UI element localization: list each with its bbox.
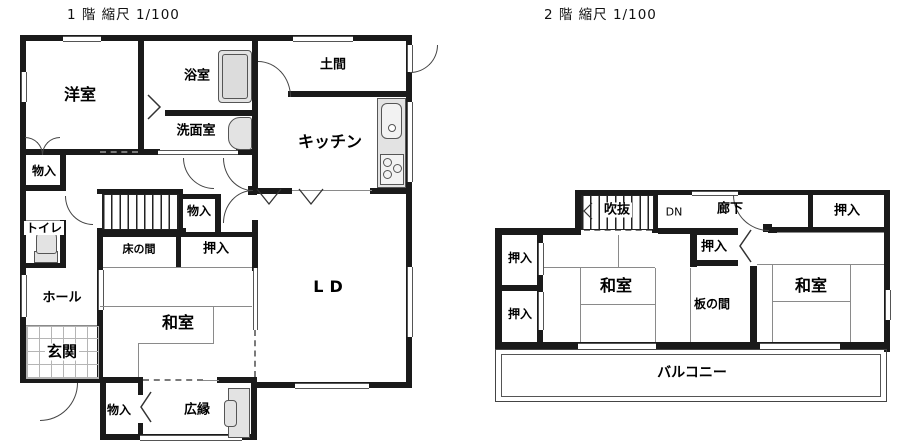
folding-door-icon — [146, 95, 162, 119]
staircase — [102, 194, 179, 230]
partition-line — [777, 232, 884, 233]
dashed-opening — [143, 379, 203, 381]
wall — [658, 228, 694, 234]
burner-icon — [393, 164, 402, 173]
kitchen-sink-icon — [381, 103, 402, 139]
wall — [165, 110, 252, 116]
sliding-door — [538, 292, 544, 330]
dashed-opening — [254, 330, 256, 377]
wall — [97, 377, 143, 383]
sliding-door — [253, 268, 258, 330]
tatami-line — [580, 304, 655, 305]
tatami-line — [772, 265, 773, 342]
washbasin-icon — [228, 117, 252, 150]
floor-plan-canvas: 1 階 縮尺 1/100 2 階 縮尺 1/100 — [0, 0, 903, 448]
door-arc — [183, 158, 214, 189]
window — [140, 435, 242, 441]
wall — [20, 263, 66, 268]
room-label-yoshitsu: 洋室 — [64, 87, 96, 103]
wall — [690, 228, 738, 235]
tatami-line — [655, 268, 656, 342]
room-label-doma: 土間 — [320, 59, 346, 72]
room-label-senmen: 洗面室 — [176, 125, 215, 138]
wall — [251, 383, 257, 440]
folding-door-icon — [139, 392, 152, 422]
room-label-hiroen: 広縁 — [184, 404, 210, 417]
tatami-line — [213, 307, 214, 344]
room-label-itanoma: 板の間 — [694, 298, 730, 310]
room-label-mononyu: 物入 — [32, 165, 56, 177]
room-label-mononyu-bottom: 物入 — [107, 404, 131, 416]
hanging-wall-marks — [257, 189, 329, 207]
room-label-mononyu-stair: 物入 — [185, 204, 213, 218]
window — [63, 36, 101, 42]
wall — [20, 185, 66, 191]
tatami-line — [138, 343, 214, 344]
room-label-oshiire: 押入 — [203, 243, 229, 256]
burner-icon — [383, 170, 392, 179]
room-label-genkan: 玄関 — [45, 344, 79, 361]
burner-icon — [383, 158, 392, 167]
folding-door-icon — [737, 230, 752, 262]
room-label-oshiire-l1: 押入 — [508, 252, 532, 264]
room-label-washitsu: 和室 — [162, 315, 194, 331]
wall — [180, 194, 221, 199]
tatami-line — [850, 265, 851, 342]
wall — [808, 195, 813, 227]
door-arc — [223, 158, 253, 191]
partition-line — [203, 380, 219, 381]
tatami-line — [580, 268, 581, 342]
tatami-line — [690, 268, 691, 342]
sliding-door — [98, 270, 104, 310]
room-label-balcony: バルコニー — [657, 366, 727, 380]
wall — [495, 228, 581, 235]
room-label-toilet: トイレ — [24, 221, 64, 235]
wall — [884, 190, 890, 352]
tatami-line — [543, 267, 655, 268]
partition-line — [757, 264, 884, 265]
room-label-hall: ホール — [42, 292, 81, 305]
room-label-dn: DN — [666, 207, 683, 218]
tatami-line — [772, 301, 850, 302]
faucet-icon — [388, 124, 396, 132]
wall — [690, 260, 738, 266]
room-label-washitsu-left: 和室 — [600, 278, 632, 294]
door-arc — [223, 190, 253, 223]
room-label-ld: LD — [313, 279, 348, 295]
sliding-door — [158, 150, 238, 155]
window — [407, 267, 413, 337]
bench-back-icon — [224, 400, 237, 427]
room-label-tokonoma: 床の間 — [123, 244, 156, 255]
stair-arrow-icon — [583, 202, 593, 220]
room-label-oshiire-mid: 押入 — [701, 241, 727, 254]
tatami-line — [100, 306, 252, 307]
wall — [215, 194, 221, 233]
door-arc — [40, 383, 78, 421]
window — [885, 290, 891, 320]
sliding-door — [538, 243, 544, 275]
window — [21, 72, 27, 102]
tatami-line — [138, 344, 139, 377]
window — [21, 275, 27, 317]
floor2-title: 2 階 縮尺 1/100 — [544, 3, 657, 23]
bathtub-icon — [218, 50, 252, 103]
room-label-rouka: 廊下 — [717, 203, 743, 216]
door-arc — [410, 45, 438, 73]
floor1-title: 1 階 縮尺 1/100 — [67, 3, 180, 23]
tatami-line — [618, 235, 619, 267]
wall — [176, 237, 181, 268]
room-label-washitsu-right: 和室 — [795, 278, 827, 294]
room-label-yokushitsu: 浴室 — [184, 70, 210, 83]
door-arc — [65, 196, 93, 225]
room-label-oshiire-tr: 押入 — [834, 205, 860, 218]
wall — [370, 188, 412, 194]
room-label-oshiire-l2: 押入 — [508, 308, 532, 320]
door-arc — [258, 61, 291, 97]
wall — [288, 91, 406, 97]
wall — [217, 377, 257, 383]
bathtub-inner — [222, 54, 248, 99]
door-arc — [25, 137, 43, 155]
wall — [138, 35, 144, 155]
window — [293, 36, 353, 42]
wall — [100, 383, 106, 440]
room-label-kitchen: キッチン — [298, 134, 362, 150]
wall — [501, 285, 541, 291]
partition-line — [103, 267, 252, 268]
window — [692, 191, 738, 196]
window — [295, 383, 369, 389]
door-arc — [42, 137, 60, 155]
window — [407, 102, 413, 182]
wall — [750, 266, 757, 348]
room-label-fukinuke: 吹抜 — [602, 203, 632, 218]
dashed-opening — [100, 151, 138, 153]
